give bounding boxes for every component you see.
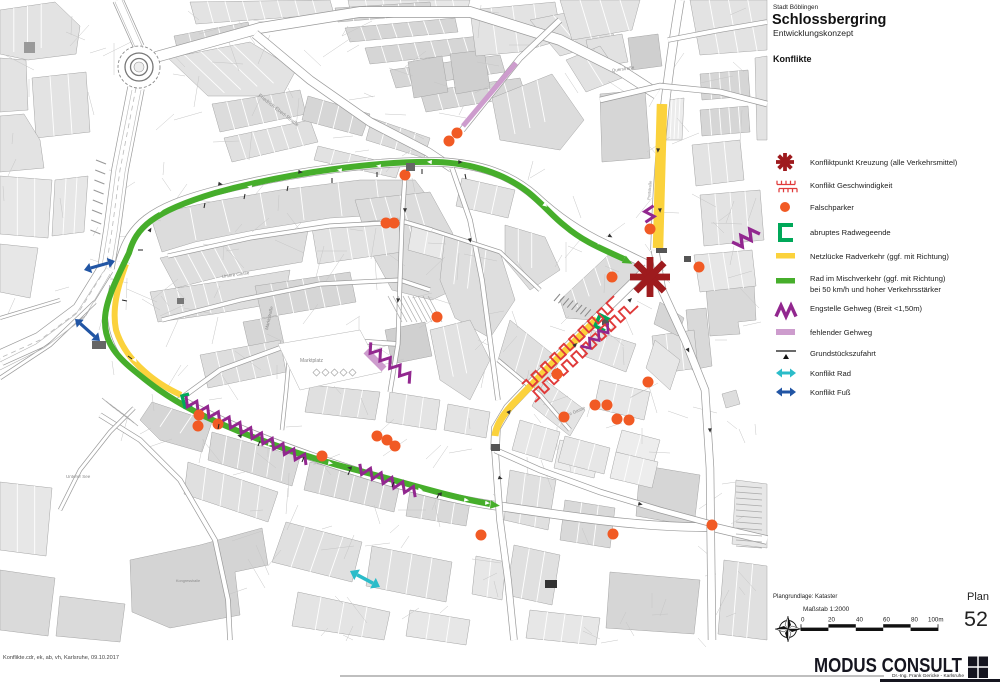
svg-text:Engstelle Gehweg (Breit <1,50m: Engstelle Gehweg (Breit <1,50m) [810,304,923,313]
svg-text:80: 80 [911,617,918,624]
svg-text:Entwicklungskonzept: Entwicklungskonzept [773,28,854,38]
svg-text:Plangrundlage: Kataster: Plangrundlage: Kataster [773,594,837,600]
svg-text:Konflikte: Konflikte [773,54,812,64]
svg-text:Konfliktpunkt Kreuzung (alle V: Konfliktpunkt Kreuzung (alle Verkehrsmit… [810,158,958,167]
svg-text:Unterer See: Unterer See [66,474,91,479]
svg-text:Konflikt Fuß: Konflikt Fuß [810,388,851,397]
svg-text:Rad im Mischverkehr (ggf. mit: Rad im Mischverkehr (ggf. mit Richtung) [810,274,946,283]
svg-text:Konflikt Geschwindigkeit: Konflikt Geschwindigkeit [810,181,893,190]
svg-text:20: 20 [828,617,835,624]
svg-text:60: 60 [883,617,890,624]
svg-text:Konflikte.cdr, ek, ab, vh, Kar: Konflikte.cdr, ek, ab, vh, Karlsruhe, 09… [3,655,119,661]
svg-text:52: 52 [964,607,988,631]
svg-text:Stadt Böblingen: Stadt Böblingen [773,4,819,11]
svg-text:bei 50 km/h und hoher Verkehrs: bei 50 km/h und hoher Verkehrsstärker [810,285,941,294]
svg-text:Falschparker: Falschparker [810,203,854,212]
svg-text:40: 40 [856,617,863,624]
svg-text:Konflikt Rad: Konflikt Rad [810,369,851,378]
svg-text:Kongresshalle: Kongresshalle [176,579,200,583]
svg-text:Netzlücke Radverkehr (ggf. mit: Netzlücke Radverkehr (ggf. mit Richtung) [810,252,949,261]
svg-text:Maßstab 1:2000: Maßstab 1:2000 [803,606,850,613]
svg-text:100m: 100m [928,617,943,624]
svg-text:Marktplatz: Marktplatz [300,358,324,364]
svg-text:abruptes Radwegeende: abruptes Radwegeende [810,228,891,237]
svg-text:Dr.-Ing. Frank Gericke - Karls: Dr.-Ing. Frank Gericke - Karlsruhe [892,673,964,679]
svg-text:Schlossbergring: Schlossbergring [772,12,886,28]
svg-text:Plan: Plan [967,591,989,603]
svg-text:0: 0 [801,617,805,624]
svg-text:fehlender Gehweg: fehlender Gehweg [810,328,872,337]
svg-text:Grundstückszufahrt: Grundstückszufahrt [810,349,877,358]
